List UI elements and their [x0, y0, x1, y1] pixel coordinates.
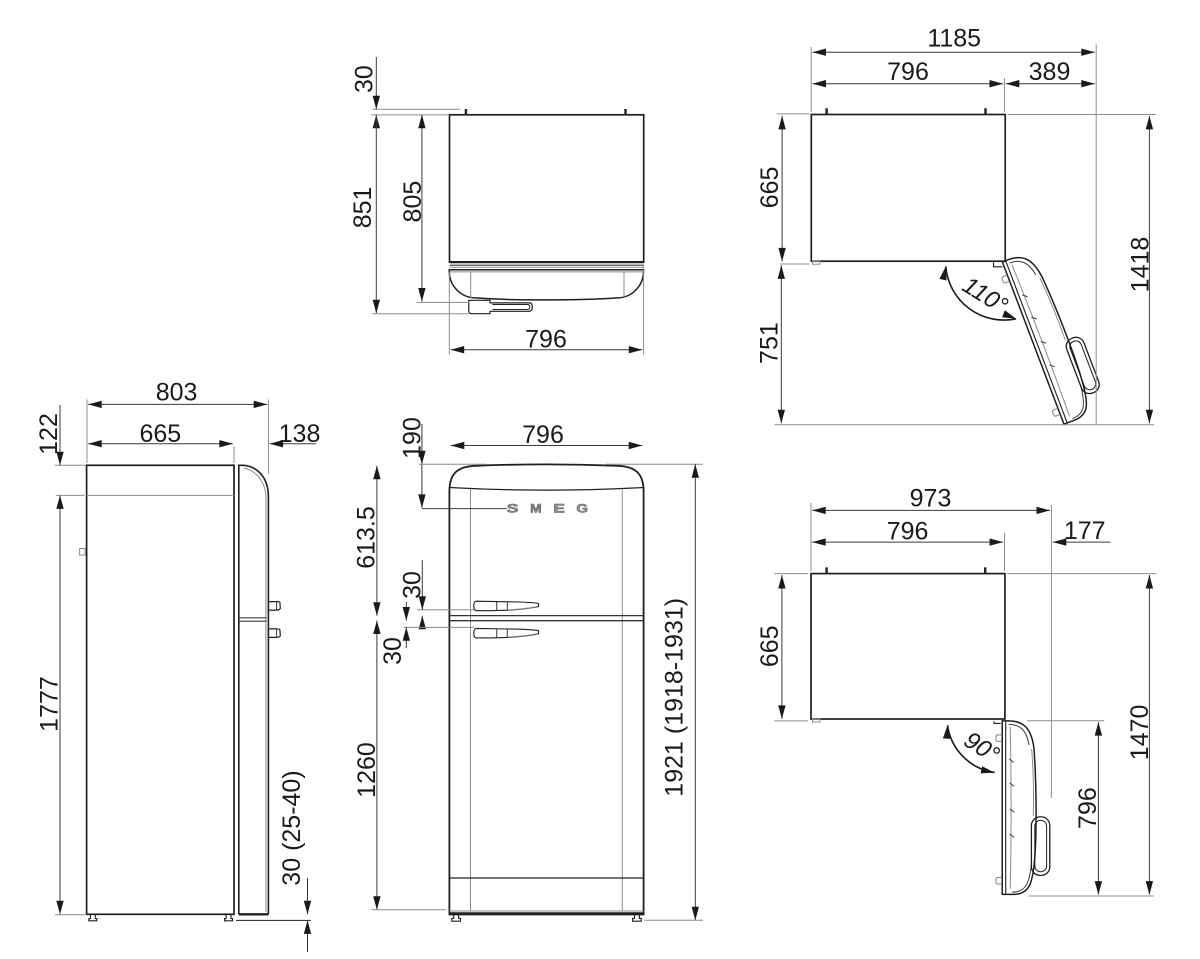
- svg-text:30 (25-40): 30 (25-40): [278, 770, 306, 885]
- svg-text:665: 665: [756, 625, 784, 667]
- svg-text:30: 30: [379, 637, 407, 665]
- svg-text:665: 665: [756, 167, 784, 209]
- svg-text:138: 138: [279, 420, 321, 448]
- svg-text:1470: 1470: [1126, 705, 1154, 761]
- svg-text:30: 30: [398, 571, 426, 599]
- svg-text:973: 973: [910, 484, 952, 512]
- svg-text:1260: 1260: [353, 742, 381, 798]
- svg-text:S: S: [507, 503, 519, 515]
- svg-text:803: 803: [156, 379, 198, 407]
- svg-text:G: G: [577, 503, 589, 515]
- svg-text:796: 796: [1074, 787, 1102, 829]
- svg-text:665: 665: [139, 420, 181, 448]
- svg-text:1418: 1418: [1126, 237, 1154, 293]
- svg-text:E: E: [553, 503, 565, 515]
- svg-text:122: 122: [35, 413, 63, 455]
- svg-text:389: 389: [1029, 58, 1071, 86]
- svg-text:613.5: 613.5: [352, 506, 380, 569]
- svg-text:1921 (1918-1931): 1921 (1918-1931): [661, 598, 689, 797]
- svg-text:851: 851: [349, 187, 377, 229]
- svg-text:796: 796: [887, 58, 929, 86]
- svg-text:796: 796: [525, 325, 567, 353]
- svg-text:805: 805: [399, 181, 427, 223]
- svg-text:30: 30: [351, 65, 379, 93]
- svg-text:796: 796: [522, 421, 564, 449]
- svg-text:190: 190: [398, 417, 426, 459]
- svg-text:177: 177: [1064, 517, 1106, 545]
- svg-text:751: 751: [756, 322, 784, 364]
- svg-text:1185: 1185: [927, 25, 981, 53]
- svg-text:M: M: [530, 503, 542, 515]
- svg-text:1777: 1777: [36, 676, 64, 732]
- svg-text:796: 796: [887, 518, 929, 546]
